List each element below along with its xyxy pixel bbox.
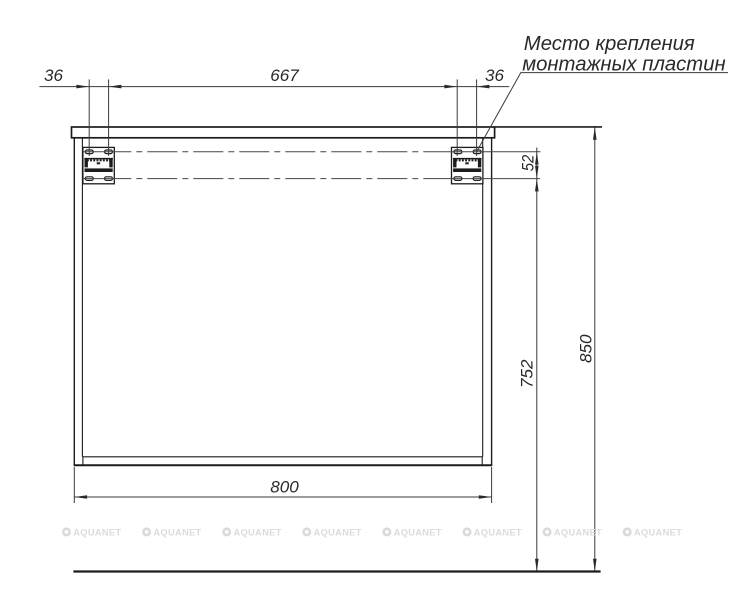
svg-text:752: 752 <box>518 359 537 388</box>
svg-text:850: 850 <box>577 334 596 363</box>
svg-text:667: 667 <box>270 66 299 85</box>
svg-text:52: 52 <box>519 154 538 171</box>
svg-text:36: 36 <box>485 66 505 85</box>
svg-text:36: 36 <box>44 66 64 85</box>
svg-text:800: 800 <box>270 478 299 497</box>
svg-text:монтажных пластин: монтажных пластин <box>522 53 725 75</box>
svg-text:AQUANET: AQUANET <box>73 528 121 538</box>
svg-text:Место крепления: Место крепления <box>524 33 695 55</box>
